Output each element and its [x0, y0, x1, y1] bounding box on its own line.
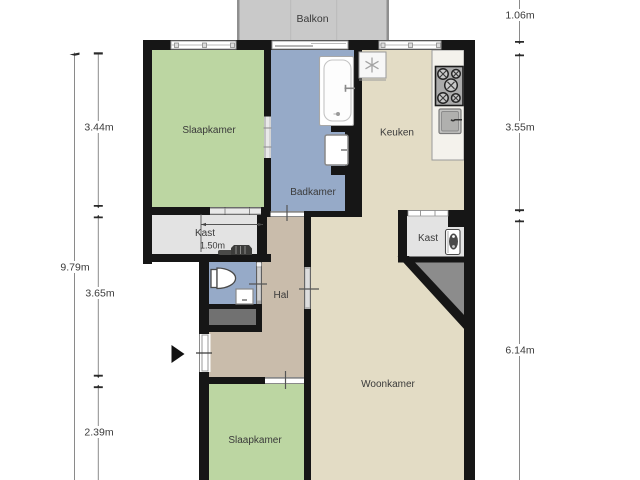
svg-text:9.79m: 9.79m — [60, 262, 89, 274]
svg-text:Woonkamer: Woonkamer — [361, 379, 415, 390]
svg-text:Kast: Kast — [195, 228, 215, 239]
svg-text:Slaapkamer: Slaapkamer — [182, 125, 236, 136]
svg-text:3.44m: 3.44m — [84, 122, 113, 134]
svg-text:3.65m: 3.65m — [85, 288, 114, 300]
svg-text:Slaapkamer: Slaapkamer — [228, 435, 282, 446]
svg-text:1.50m: 1.50m — [200, 241, 225, 251]
svg-text:6.14m: 6.14m — [505, 345, 534, 357]
svg-text:1.06m: 1.06m — [505, 10, 534, 22]
svg-text:Hal: Hal — [273, 290, 288, 301]
svg-text:Badkamer: Badkamer — [290, 187, 336, 198]
svg-text:Balkon: Balkon — [296, 13, 328, 25]
svg-text:2.39m: 2.39m — [84, 427, 113, 439]
svg-text:Kast: Kast — [418, 233, 438, 244]
svg-text:3.55m: 3.55m — [505, 122, 534, 134]
svg-text:Keuken: Keuken — [380, 128, 414, 139]
